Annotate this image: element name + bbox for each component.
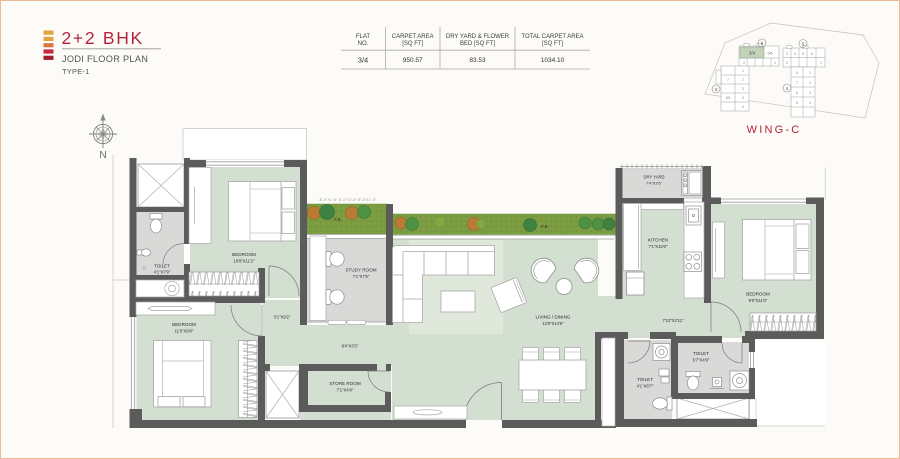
svg-text:8'4"X3'3": 8'4"X3'3" [342, 344, 359, 349]
svg-text:2: 2 [743, 61, 745, 65]
svg-text:KITCHEN: KITCHEN [648, 238, 668, 243]
svg-text:2: 2 [786, 61, 788, 65]
svg-text:3: 3 [809, 91, 811, 95]
svg-text:10'8"X11'2": 10'8"X11'2" [233, 259, 255, 264]
svg-text:F.B.: F.B. [334, 217, 342, 222]
svg-text:JODI FLOOR PLAN: JODI FLOOR PLAN [62, 54, 148, 64]
svg-text:BED [SQ FT]: BED [SQ FT] [460, 41, 495, 47]
svg-text:TYPE-1: TYPE-1 [62, 67, 90, 76]
svg-text:13'9"X14'9": 13'9"X14'9" [542, 321, 564, 326]
svg-text:LIVING / DINING: LIVING / DINING [536, 315, 571, 320]
svg-text:950.57: 950.57 [403, 57, 423, 64]
svg-text:TOTAL CARPET AREA: TOTAL CARPET AREA [521, 34, 583, 40]
svg-text:7'1"X10'0": 7'1"X10'0" [648, 244, 668, 249]
svg-text:8: 8 [796, 71, 798, 75]
svg-text:2: 2 [742, 78, 744, 82]
svg-text:2: 2 [809, 81, 811, 85]
svg-text:3'1"X9'2": 3'1"X9'2" [274, 315, 291, 320]
svg-text:STORE ROOM: STORE ROOM [329, 381, 360, 386]
svg-text:9'0"X11'0": 9'0"X11'0" [749, 298, 768, 303]
svg-text:4: 4 [786, 86, 789, 91]
svg-text:7: 7 [796, 81, 798, 85]
svg-text:4: 4 [742, 105, 744, 109]
svg-text:7'4"X2'6": 7'4"X2'6" [646, 181, 663, 186]
svg-text:4: 4 [794, 52, 796, 56]
svg-text:3/4: 3/4 [358, 56, 368, 65]
svg-text:6: 6 [811, 52, 813, 56]
svg-text:NO.: NO. [358, 41, 369, 47]
svg-text:[SQ FT]: [SQ FT] [402, 41, 423, 47]
svg-text:STUDY ROOM: STUDY ROOM [345, 268, 376, 273]
svg-text:6: 6 [796, 91, 798, 95]
svg-text:3: 3 [715, 87, 718, 92]
svg-text:7: 7 [727, 78, 729, 82]
svg-text:DRY YARD: DRY YARD [643, 175, 664, 180]
svg-text:BEDROOM: BEDROOM [746, 292, 770, 297]
svg-text:TOILET: TOILET [154, 264, 170, 269]
svg-text:TOILET: TOILET [637, 377, 653, 382]
svg-text:BEDROOM: BEDROOM [232, 252, 256, 257]
svg-text:5/6: 5/6 [768, 52, 773, 56]
svg-text:2: 2 [742, 87, 744, 91]
svg-text:11'0"X9'8": 11'0"X9'8" [175, 329, 194, 334]
svg-text:F.B.: F.B. [541, 224, 549, 229]
svg-text:3: 3 [742, 96, 744, 100]
svg-text:1034.10: 1034.10 [541, 57, 565, 64]
svg-text:FLAT: FLAT [356, 34, 371, 40]
svg-text:2+2 BHK: 2+2 BHK [62, 28, 144, 48]
svg-text:1: 1 [809, 71, 811, 75]
svg-text:1: 1 [742, 69, 744, 73]
svg-text:83.53: 83.53 [469, 57, 486, 64]
svg-text:7'1"X7'5": 7'1"X7'5" [353, 274, 370, 279]
svg-text:7'10"X2'11": 7'10"X2'11" [662, 318, 684, 323]
svg-text:5: 5 [802, 52, 804, 56]
svg-text:3: 3 [786, 52, 788, 56]
svg-text:N: N [99, 149, 107, 161]
svg-text:4'1"X7'9": 4'1"X7'9" [154, 270, 171, 275]
svg-text:BEDROOM: BEDROOM [172, 322, 196, 327]
svg-text:6: 6 [761, 41, 764, 46]
svg-text:WING-C: WING-C [747, 124, 802, 136]
svg-text:CARPET AREA: CARPET AREA [392, 34, 434, 40]
svg-text:8'-0"X1'-6" 8'-0"X1'-6" 8'-0: 8'-0"X1'-6" 8'-0"X1'-6" 8'-0"X1'-6" [320, 198, 377, 202]
svg-text:[SQ FT]: [SQ FT] [542, 41, 563, 47]
svg-text:TOILET: TOILET [693, 351, 709, 356]
svg-text:1: 1 [774, 61, 776, 65]
svg-text:DRY YARD & FLOWER: DRY YARD & FLOWER [446, 34, 510, 40]
svg-text:6'7"X4'9": 6'7"X4'9" [693, 358, 710, 363]
svg-text:3/4: 3/4 [749, 51, 756, 56]
svg-text:7'1"X4'8": 7'1"X4'8" [337, 388, 354, 393]
svg-text:4'1"X8'7": 4'1"X8'7" [637, 384, 654, 389]
svg-text:5: 5 [796, 101, 798, 105]
svg-text:4: 4 [809, 101, 811, 105]
svg-text:1: 1 [820, 61, 822, 65]
svg-text:5/6: 5/6 [726, 96, 731, 100]
